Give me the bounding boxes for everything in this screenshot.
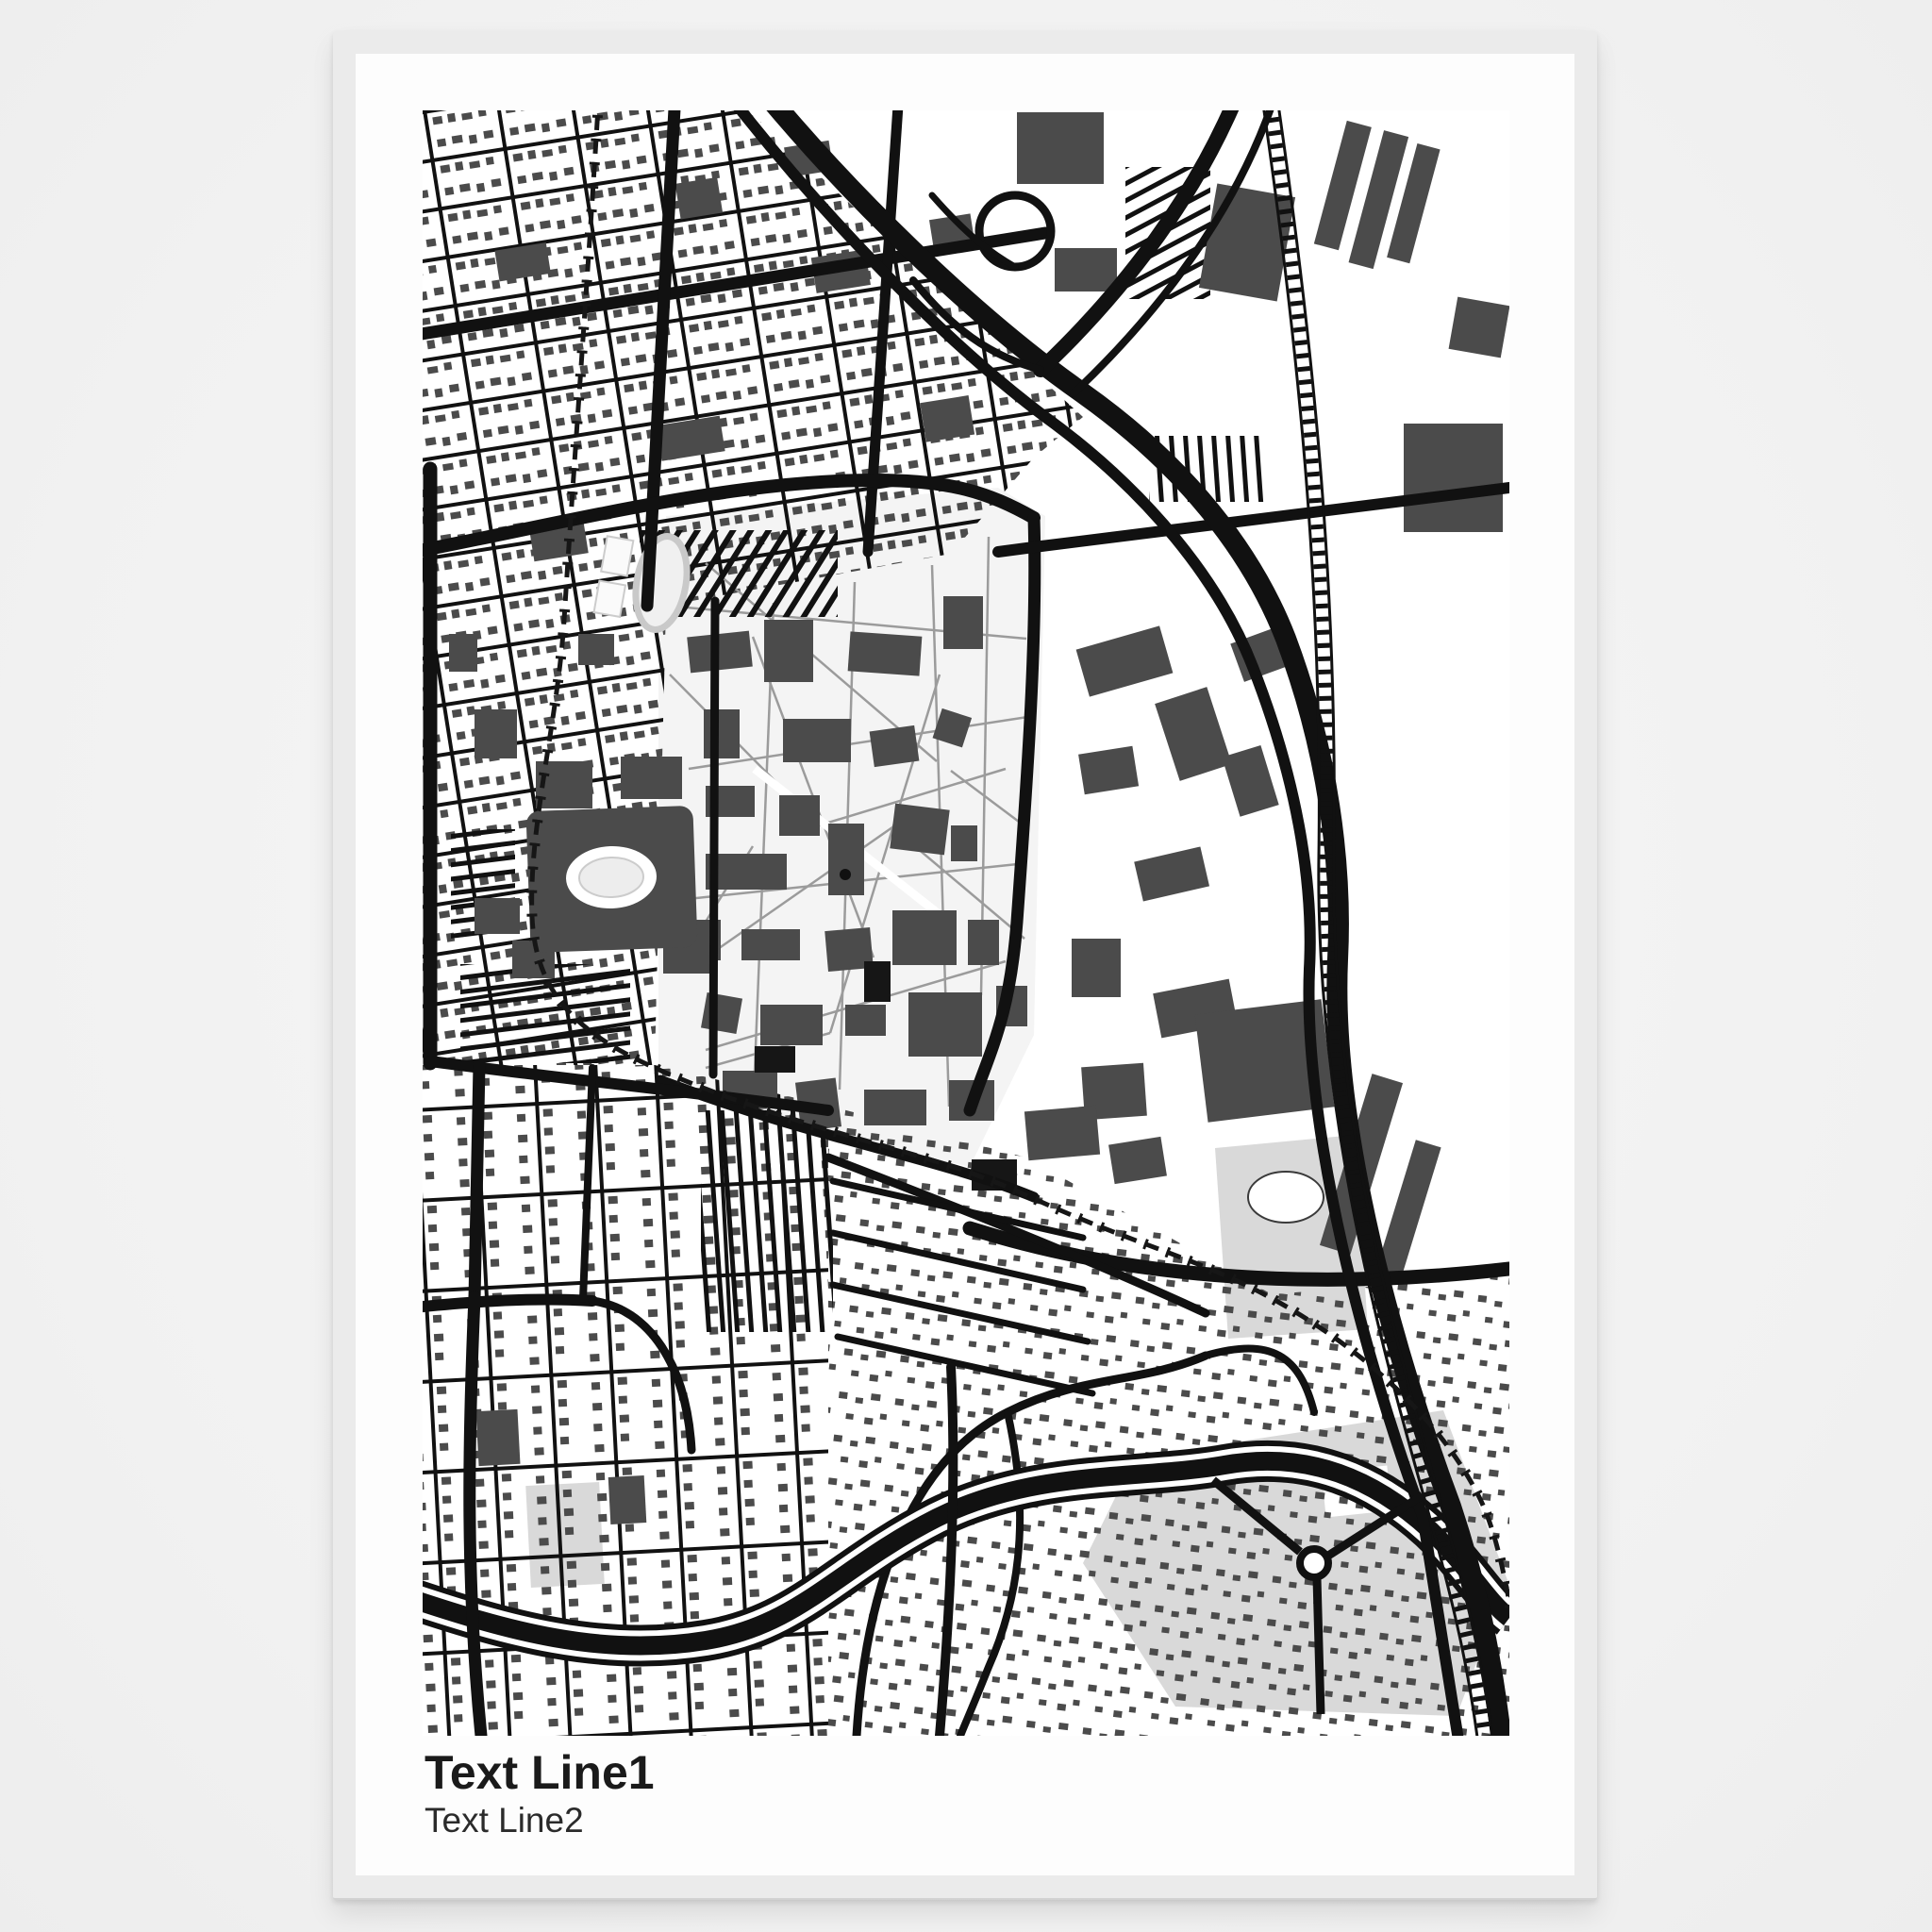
- poster-text-block: Text Line1 Text Line2: [425, 1746, 655, 1840]
- poster-frame: Text Line1 Text Line2: [333, 31, 1597, 1900]
- poster-title: Text Line1: [425, 1746, 655, 1799]
- stadium-parking-stripes: [460, 964, 630, 1063]
- page-background: Text Line1 Text Line2: [0, 0, 1932, 1932]
- south-parking-stripes: [701, 1110, 833, 1332]
- city-map-svg: [423, 110, 1509, 1736]
- campus-fountain: [840, 869, 851, 880]
- pond: [1248, 1172, 1324, 1223]
- poster-paper: Text Line1 Text Line2: [356, 54, 1574, 1875]
- city-map: [423, 110, 1509, 1736]
- poster-subtitle: Text Line2: [425, 1802, 655, 1840]
